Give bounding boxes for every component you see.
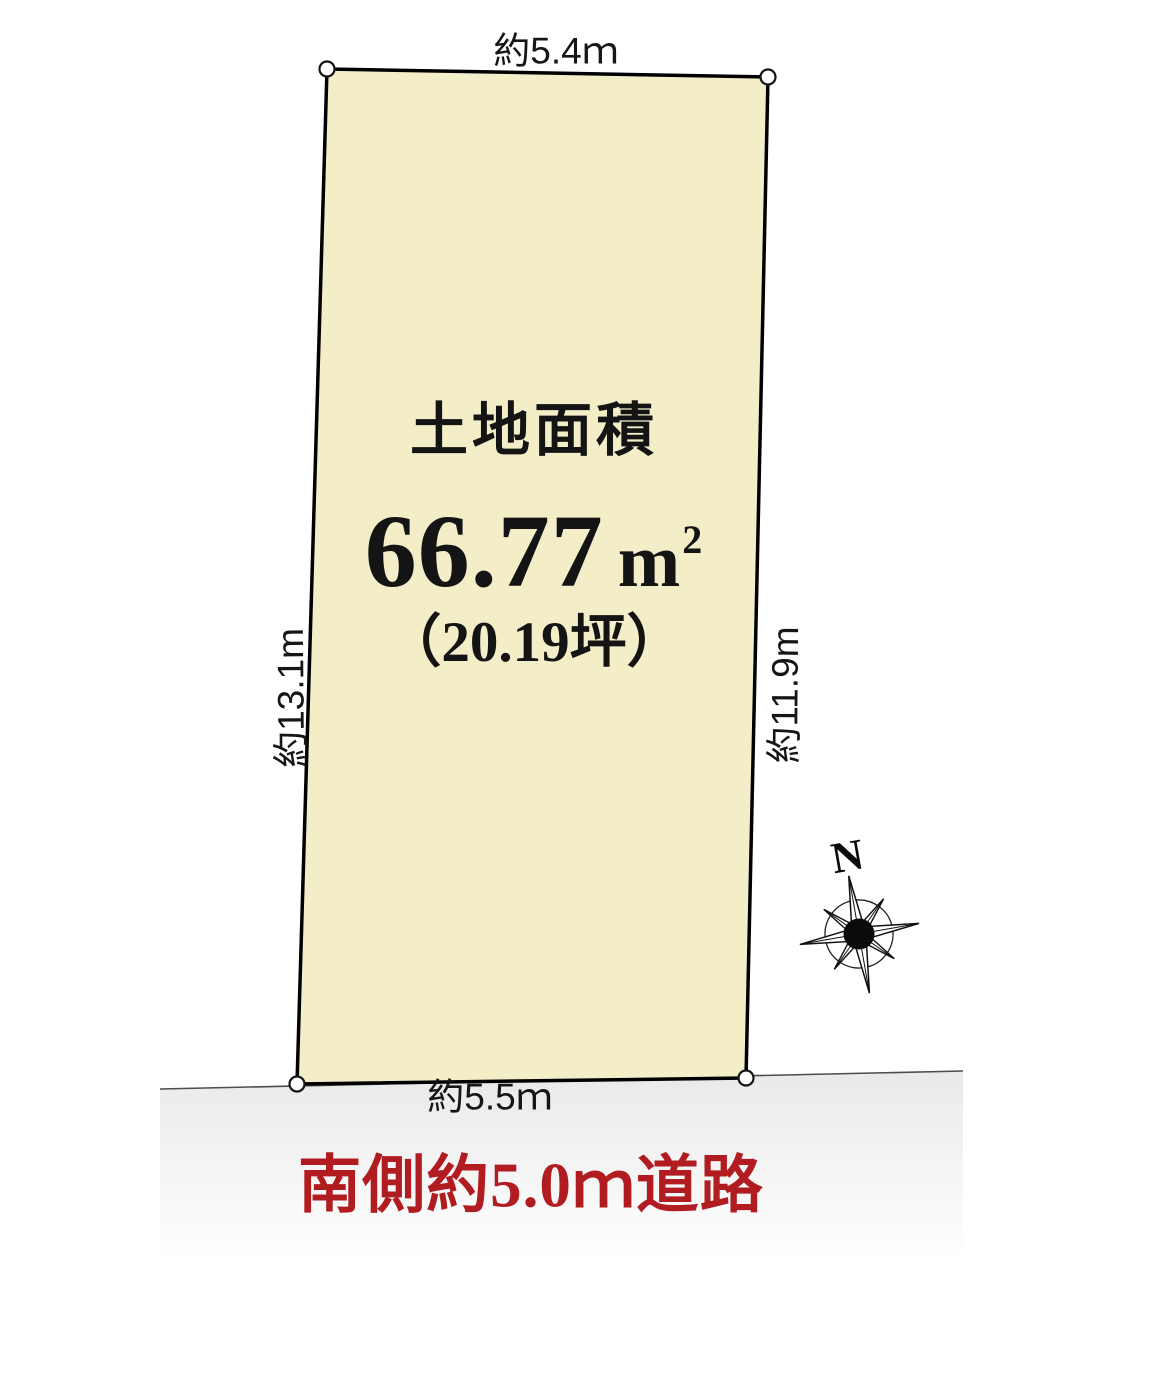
- plot-area-value: 66.77: [365, 494, 604, 609]
- plot-area-value-line: 66.77m2: [365, 500, 703, 604]
- compass-rose: N: [782, 822, 929, 1004]
- corner-marker-bottom-left: [290, 1077, 305, 1092]
- compass-north-label: N: [827, 829, 867, 883]
- plot-area-tsubo: （20.19坪）: [384, 614, 683, 671]
- corner-marker-bottom-right: [739, 1071, 754, 1086]
- corner-marker-top-right: [761, 70, 776, 85]
- dimension-label-right: 約11.9m: [766, 626, 804, 763]
- plot-area-unit-sup: 2: [682, 517, 703, 562]
- land-plot-diagram: N 約5.4ｍ 約13.1m 約11.9m 約5.5ｍ 土地面積 66.77m2…: [0, 0, 1149, 1387]
- road-label: 南側約5.0ｍ道路: [298, 1155, 764, 1218]
- dimension-label-top: 約5.4ｍ: [493, 33, 618, 70]
- plot-area-unit: m: [618, 520, 681, 603]
- corner-marker-top-left: [320, 62, 335, 77]
- dimension-label-bottom: 約5.5ｍ: [427, 1079, 552, 1116]
- dimension-label-left: 約13.1m: [272, 628, 310, 768]
- plot-area-title: 土地面積: [410, 402, 658, 460]
